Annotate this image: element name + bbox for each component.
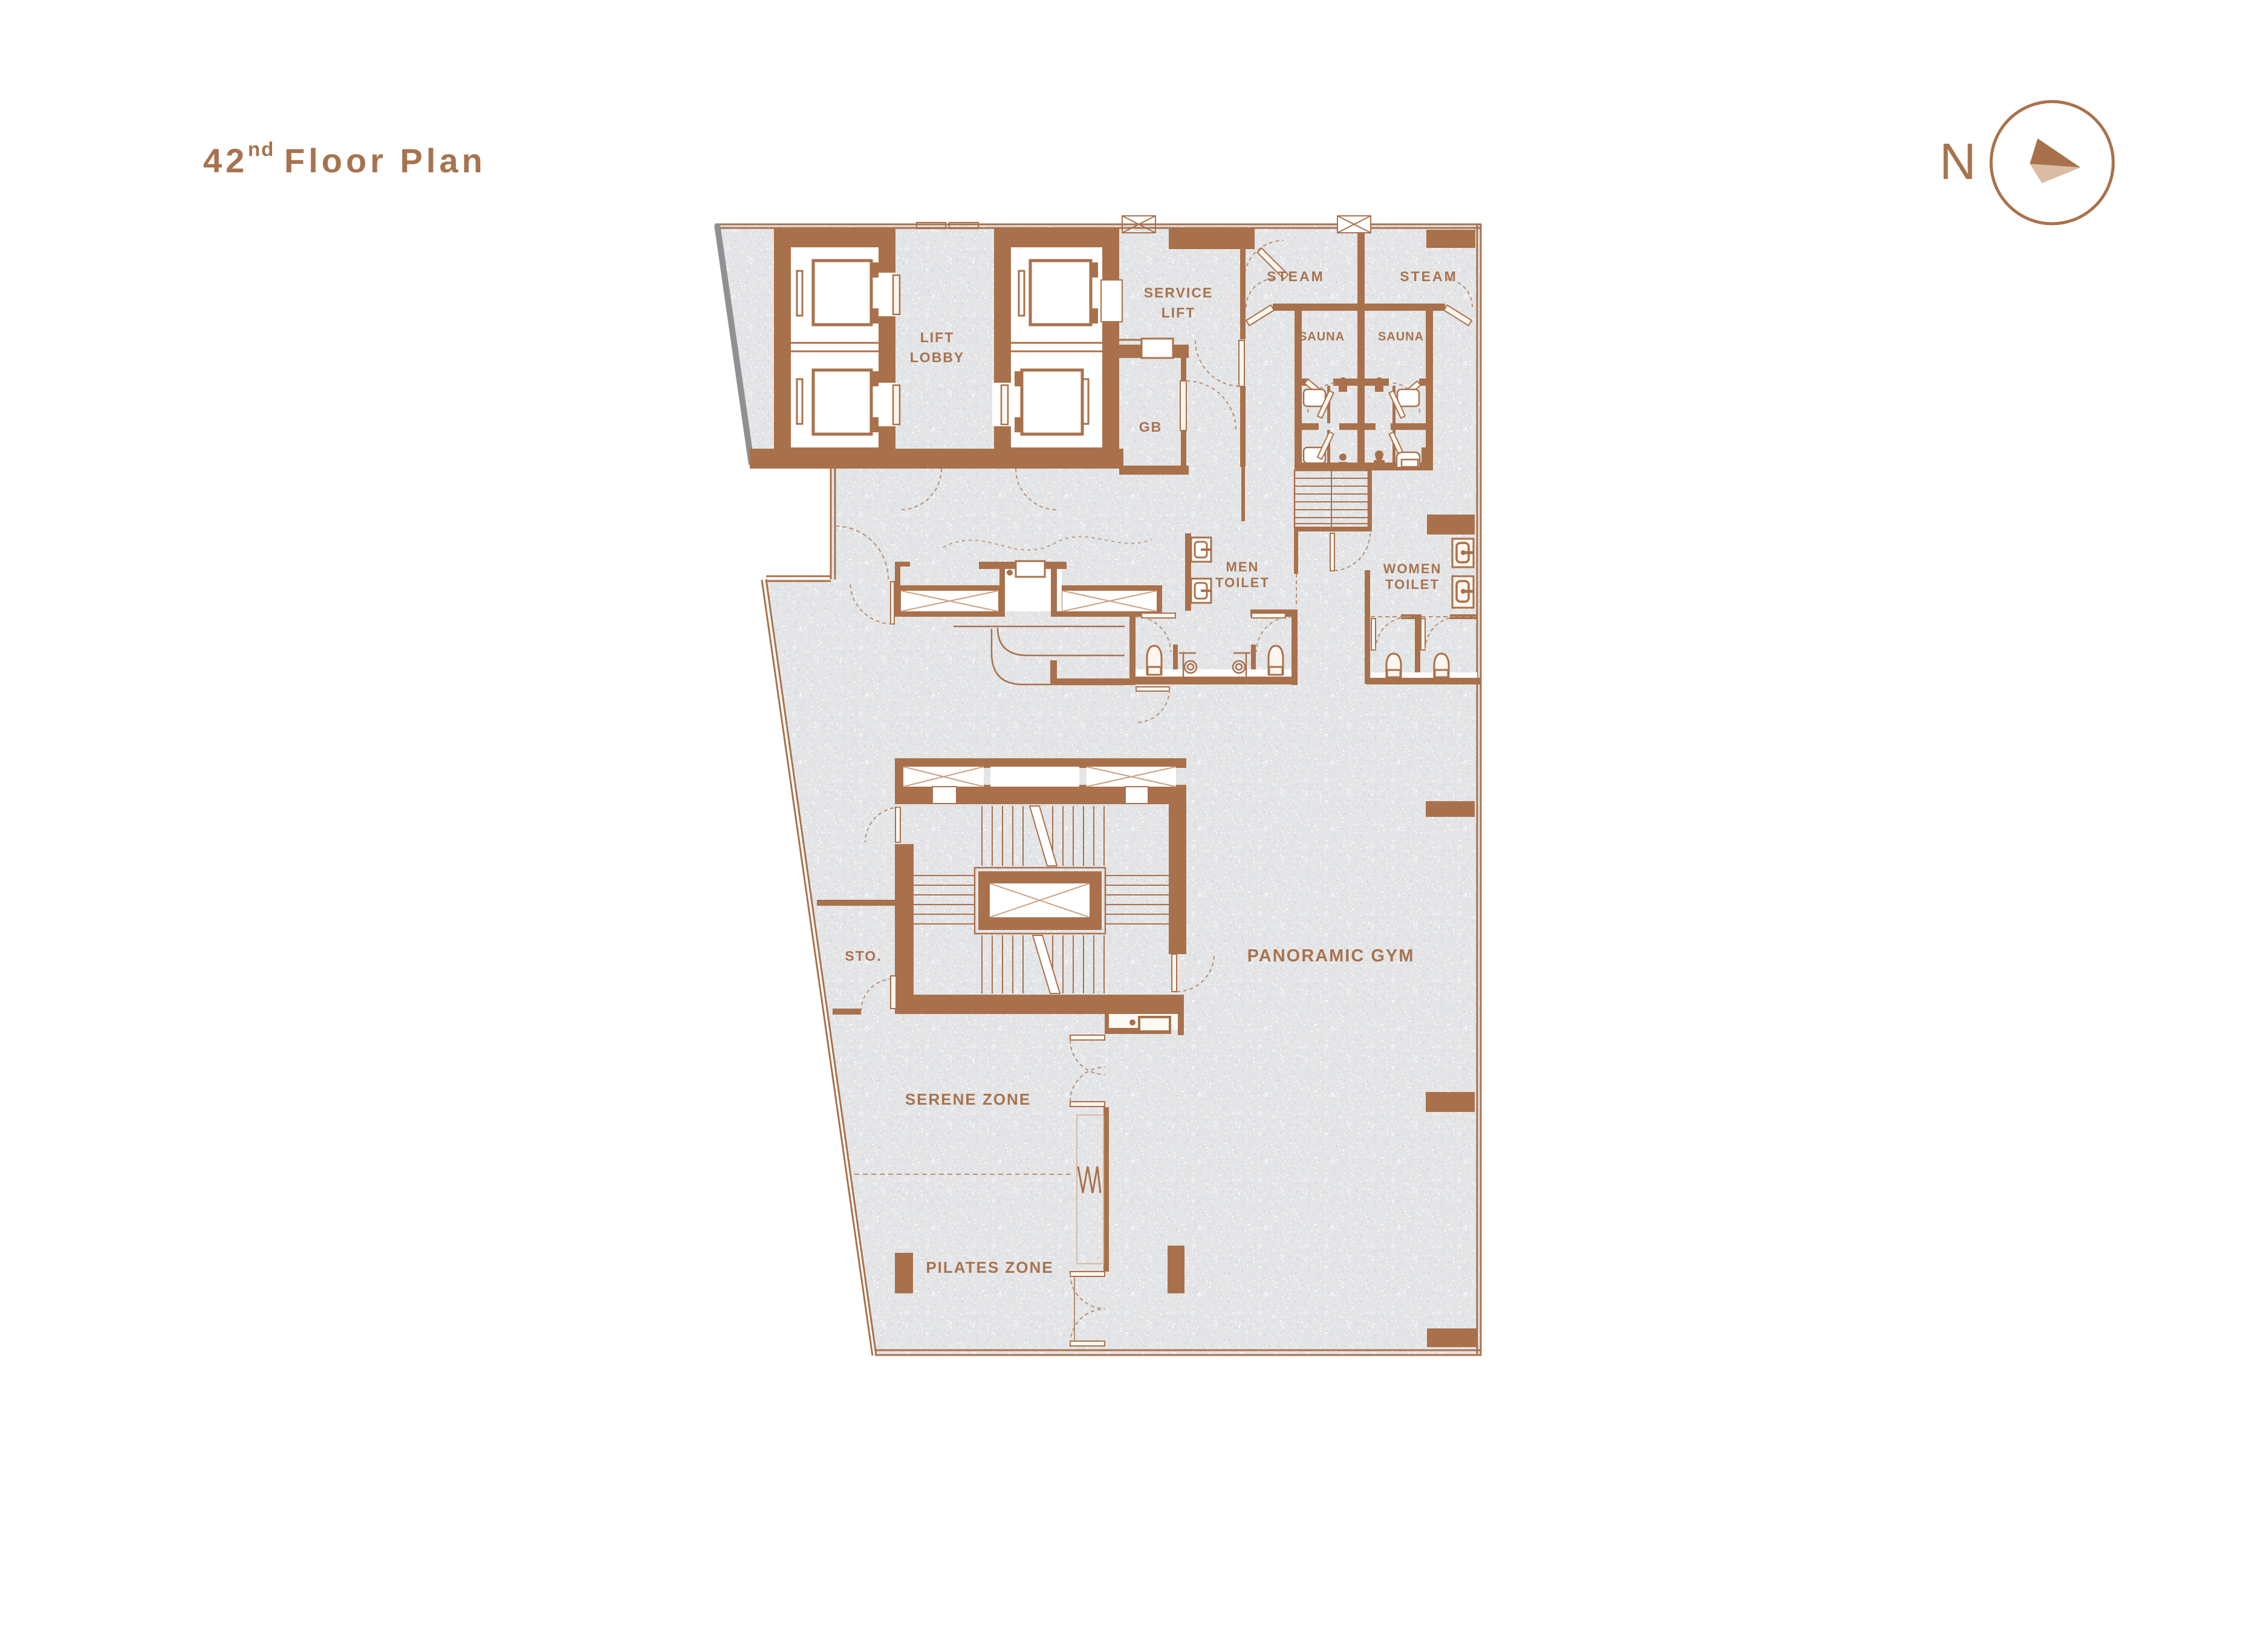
svg-text:SAUNA: SAUNA xyxy=(1299,330,1345,343)
svg-text:LIFT: LIFT xyxy=(1162,305,1196,320)
svg-text:PILATES ZONE: PILATES ZONE xyxy=(926,1258,1053,1276)
svg-text:LIFT: LIFT xyxy=(920,330,955,345)
svg-text:TOILET: TOILET xyxy=(1215,575,1270,590)
svg-text:GB: GB xyxy=(1139,419,1163,435)
svg-text:STEAM: STEAM xyxy=(1267,268,1325,284)
svg-text:SERVICE: SERVICE xyxy=(1144,285,1214,301)
svg-text:N: N xyxy=(1940,133,1977,190)
svg-text:nd: nd xyxy=(248,138,275,160)
svg-text:LOBBY: LOBBY xyxy=(910,349,965,365)
svg-text:PANORAMIC GYM: PANORAMIC GYM xyxy=(1247,946,1415,966)
svg-text:MEN: MEN xyxy=(1226,559,1259,574)
svg-text:Floor Plan: Floor Plan xyxy=(284,141,486,180)
svg-text:TOILET: TOILET xyxy=(1385,577,1440,592)
svg-text:42: 42 xyxy=(203,141,248,180)
svg-text:STO.: STO. xyxy=(845,948,882,964)
svg-text:SERENE ZONE: SERENE ZONE xyxy=(905,1090,1031,1108)
svg-text:SAUNA: SAUNA xyxy=(1378,330,1424,343)
svg-text:WOMEN: WOMEN xyxy=(1383,561,1442,576)
svg-text:STEAM: STEAM xyxy=(1400,268,1458,284)
